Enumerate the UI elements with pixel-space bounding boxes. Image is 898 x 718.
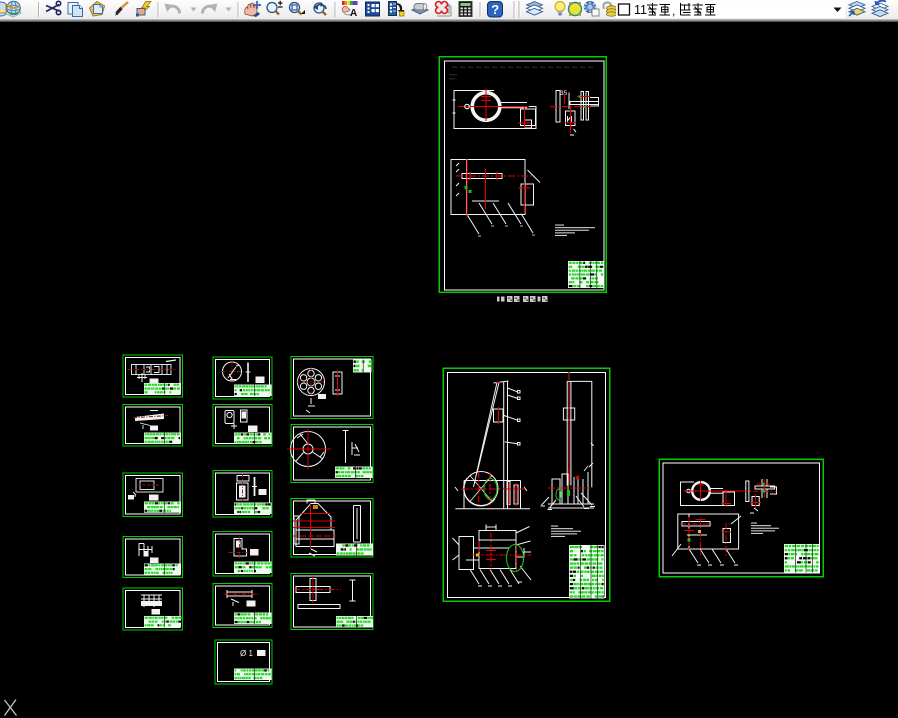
svg-text:11: 11	[634, 3, 647, 17]
svg-text:,: ,	[672, 4, 675, 18]
svg-text:A: A	[350, 8, 357, 19]
svg-text:?: ?	[491, 2, 499, 17]
svg-text:35: 35	[560, 90, 568, 97]
svg-text:Ø 1: Ø 1	[240, 649, 253, 658]
